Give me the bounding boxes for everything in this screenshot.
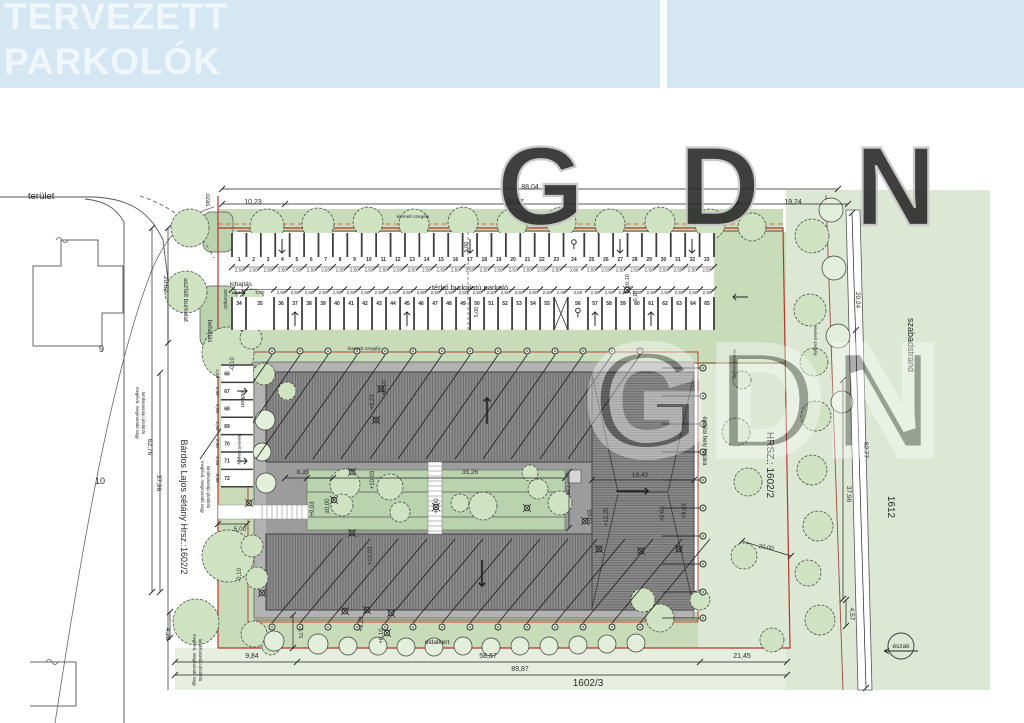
plan-label: kiemelt szegély	[397, 214, 430, 220]
plan-label: ±0,00	[325, 498, 331, 514]
stall-number: 12	[395, 257, 401, 263]
stall-dim: 2,50	[389, 290, 398, 295]
stall-number: 57	[592, 301, 598, 307]
stall-dim: 2,50	[590, 290, 599, 295]
stall-number: 47	[432, 301, 438, 307]
stall-dim: 2,50	[215, 456, 220, 465]
stall-dim: 2,50	[601, 268, 610, 273]
plan-label: +0,00	[434, 498, 440, 514]
plan-label: +9,03	[310, 501, 316, 517]
stall-number: 67	[224, 389, 230, 395]
stall-dim: 2,50	[689, 290, 698, 295]
watermark-text: GDN	[497, 124, 1024, 249]
stall-dim: 2,50	[307, 268, 316, 273]
plan-label: észak	[893, 643, 911, 650]
plan-label: +6,10	[382, 380, 388, 396]
stall-dim: 2,50	[361, 290, 370, 295]
stall-dim: 2,50	[673, 268, 682, 273]
stall-dim: 2,50	[336, 268, 345, 273]
stall-dim: 2,50	[375, 290, 384, 295]
plan-label: -0,10	[230, 357, 236, 371]
plan-label: kiemelt szegély	[237, 435, 242, 465]
stall-number: 52	[502, 301, 508, 307]
stall-number: 35	[257, 301, 263, 307]
stall-number: 45	[404, 301, 410, 307]
plan-label: lombkoronájú platánfa	[198, 639, 203, 682]
stall-number: 5	[295, 257, 298, 263]
plan-label: 89,87	[511, 666, 529, 673]
stall-number: 46	[418, 301, 424, 307]
stall-number: 31	[675, 257, 681, 263]
stall-number: 56	[575, 301, 581, 307]
stall-dim: 2,50	[264, 268, 273, 273]
stall-dim: 2,50	[494, 268, 503, 273]
site-plan-drawing: 12,5022,5032,5042,5052,5062,5072,5082,50…	[0, 0, 1024, 723]
stall-number: 39	[320, 301, 326, 307]
stall-dim: 2,50	[480, 268, 489, 273]
stall-number: 29	[646, 257, 652, 263]
plan-label: -0,10	[237, 568, 243, 582]
stall-number: 41	[348, 301, 354, 307]
plan-label: +9,23	[370, 394, 376, 410]
plan-label: 4,57	[848, 608, 855, 621]
stall-number: 66	[224, 372, 230, 378]
stall-number: 4	[281, 257, 284, 263]
stall-dim: 2,50	[379, 268, 388, 273]
stall-dim: 2,50	[215, 439, 220, 448]
stall-number: 50	[474, 301, 480, 307]
plan-label: 35,26	[462, 469, 479, 476]
stall-number: 27	[618, 257, 624, 263]
stall-number: 53	[516, 301, 522, 307]
plan-label: 9,84	[245, 653, 259, 660]
stall-dim: 2,50	[215, 369, 220, 378]
plan-label: 20,52	[162, 276, 169, 293]
plan-label: terület	[28, 191, 55, 202]
plan-label: +10,03	[368, 546, 374, 565]
plan-label: kihajtás	[230, 281, 253, 288]
stall-number: 38	[306, 301, 312, 307]
stall-number: 22	[539, 257, 545, 263]
stall-number: 70	[224, 441, 230, 447]
stall-number: 34	[236, 301, 242, 307]
plan-label: Bárdos Lajos sétány Hrsz.:1602/2	[179, 439, 189, 574]
plan-label: meglévő, megmaradó nagy	[192, 634, 197, 687]
stall-number: 15	[438, 257, 444, 263]
stall-dim: 2,50	[422, 268, 431, 273]
stall-number: 51	[488, 301, 494, 307]
stall-number: 37	[292, 301, 298, 307]
stall-dim: 2,50	[552, 268, 561, 273]
plan-label: 0,10	[633, 291, 639, 302]
stall-number: 54	[530, 301, 536, 307]
stall-dim: 2,50	[451, 268, 460, 273]
stall-dim: 2,50	[215, 474, 220, 483]
plan-label: +10,03	[370, 470, 376, 489]
stall-dim: 2,50	[347, 290, 356, 295]
stall-dim: 2,50	[702, 268, 711, 273]
stall-number: 25	[589, 257, 595, 263]
plan-label: aszfalt burkolat	[182, 278, 189, 322]
plan-label: ozás	[204, 194, 210, 207]
stall-number: 55	[544, 301, 550, 307]
stall-dim: 2,50	[215, 421, 220, 430]
stall-number: 68	[224, 407, 230, 413]
stall-dim: 2,50	[437, 268, 446, 273]
stall-number: 14	[424, 257, 430, 263]
stall-number: 44	[390, 301, 396, 307]
plan-label: oldalkert	[425, 639, 450, 646]
plan-label: 10,23	[244, 199, 262, 206]
stall-number: 58	[606, 301, 612, 307]
plan-label: 37,96	[845, 486, 852, 503]
stall-dim: 2,50	[364, 268, 373, 273]
stall-dim: 3,60	[573, 290, 582, 295]
stall-number: 59	[620, 301, 626, 307]
stall-dim: 2,50	[215, 404, 220, 413]
plan-label: +9,60	[660, 506, 666, 522]
stall-number: 6	[310, 257, 313, 263]
stall-dim: 2,50	[393, 268, 402, 273]
stall-number: 20	[510, 257, 516, 263]
plan-label: 58,57	[479, 653, 497, 660]
stall-number: 33	[704, 257, 710, 263]
plan-label: térkő burkolatú parkoló	[432, 283, 508, 292]
stall-number: 72	[224, 476, 230, 482]
stall-number: 1	[238, 257, 241, 263]
plan-label: 5,00	[234, 526, 247, 533]
stall-number: 30	[661, 257, 667, 263]
stall-dim: 2,50	[604, 290, 613, 295]
stall-dim: 2,50	[292, 268, 301, 273]
stall-number: 42	[362, 301, 368, 307]
plan-label: +9,23	[359, 616, 365, 632]
stall-number: 65	[704, 301, 710, 307]
plan-label: 4,28	[164, 628, 171, 641]
stall-dim: 2,50	[465, 268, 474, 273]
stall-number: 64	[690, 301, 696, 307]
plan-label: +12,25	[604, 507, 610, 526]
stall-dim: 2,50	[291, 290, 300, 295]
stall-dim: 2,50	[350, 268, 359, 273]
stall-dim: 2,50	[645, 268, 654, 273]
plan-label: behajtás	[206, 320, 212, 343]
watermark-text: GDN	[588, 316, 945, 484]
stall-number: 26	[603, 257, 609, 263]
stall-number: 36	[278, 301, 284, 307]
plan-label: 20,24	[854, 292, 861, 309]
plan-label: meglévő, megmaradó nagy	[135, 387, 140, 440]
stall-number: 21	[525, 257, 531, 263]
stall-dim: 2,50	[277, 290, 286, 295]
stall-number: 28	[632, 257, 638, 263]
stall-number: 63	[676, 301, 682, 307]
stall-dim: 2,50	[319, 290, 328, 295]
stall-dim: 2,50	[703, 290, 712, 295]
stall-number: 18	[481, 257, 487, 263]
stall-number: 13	[409, 257, 415, 263]
stall-dim: 2,50	[515, 290, 524, 295]
stall-dim: 2,45	[556, 290, 565, 295]
stall-number: 11	[381, 257, 387, 263]
plan-label: 7,35	[564, 485, 570, 495]
neighbor-buildings	[30, 238, 123, 707]
stall-dim: 2,50	[249, 268, 258, 273]
stall-dim: 2,50	[403, 290, 412, 295]
plan-label: előkert	[239, 391, 245, 408]
stall-number: 32	[690, 257, 696, 263]
plan-label: 10	[95, 476, 105, 486]
plan-label: 5,00	[474, 307, 480, 318]
plan-label: 9	[99, 344, 104, 354]
stall-number: 61	[648, 301, 654, 307]
screenshot-page: TERVEZETT PARKOLÓK 12,5022,5032,5042,505…	[0, 0, 1024, 723]
stall-number: 40	[334, 301, 340, 307]
stall-number: 62	[662, 301, 668, 307]
stall-dim: 2,50	[616, 268, 625, 273]
stall-dim: 2,50	[333, 290, 342, 295]
stall-number: 69	[224, 424, 230, 430]
plan-label: 8,35	[297, 469, 310, 476]
stall-number: 71	[224, 459, 230, 465]
plan-label: +6,10	[379, 628, 385, 644]
stall-dim: 2,50	[630, 268, 639, 273]
stall-dim: 2,50	[215, 387, 220, 396]
plan-label: 1612	[885, 496, 896, 519]
stall-number: 43	[376, 301, 382, 307]
plan-label: kiemelt szegély	[348, 346, 381, 352]
stall-number: 24	[571, 257, 577, 263]
stall-number: 23	[554, 257, 560, 263]
plan-label: meglévő, megmaradó nagy	[200, 461, 205, 514]
stall-number: 48	[446, 301, 452, 307]
stall-dim: 2,50	[647, 290, 656, 295]
plan-label: 3,75	[297, 628, 303, 639]
stall-number: 3	[267, 257, 270, 263]
stall-dim: 2,50	[529, 290, 538, 295]
plan-label: lombkoronájú platánfa	[141, 392, 146, 435]
plan-label: 21,45	[733, 653, 751, 660]
stall-dim: 2,50	[543, 290, 552, 295]
plan-label: 5,00	[464, 242, 470, 253]
stall-dim: 2,50	[523, 268, 532, 273]
stall-dim: 2,50	[305, 290, 314, 295]
stall-dim: 2,50	[509, 268, 518, 273]
stall-number: 19	[496, 257, 502, 263]
stall-number: 16	[453, 257, 459, 263]
stall-number: 2	[252, 257, 255, 263]
stall-dim: 2,50	[537, 268, 546, 273]
stall-dim: 2,50	[321, 268, 330, 273]
stall-dim: 3,60	[569, 268, 578, 273]
stall-dim: 2,50	[408, 268, 417, 273]
stall-number: 10	[366, 257, 372, 263]
plan-label: ±0,10	[625, 274, 631, 288]
stall-number: 49	[460, 301, 466, 307]
stall-dim: 2,50	[417, 290, 426, 295]
plan-label: 1602/3	[573, 678, 604, 689]
plan-label: lombkoronájú platánfa	[206, 466, 211, 509]
stall-number: 9	[353, 257, 356, 263]
stall-dim: 2,50	[688, 268, 697, 273]
stall-dim: 2,50	[587, 268, 596, 273]
stall-dim: 2,50	[278, 268, 287, 273]
stall-number: 8	[339, 257, 342, 263]
stall-dim: 5,00	[256, 290, 265, 295]
plan-label: 62,76	[146, 439, 153, 456]
stall-dim: 2,50	[675, 290, 684, 295]
stall-dim: 2,50	[659, 268, 668, 273]
plan-label: sorompó	[222, 289, 228, 309]
stall-number: 7	[324, 257, 327, 263]
plan-label: +9,03	[682, 503, 688, 519]
plan-label: +9,65	[588, 509, 594, 525]
stall-dim: 2,50	[661, 290, 670, 295]
stall-dim: 2,50	[235, 268, 244, 273]
plan-label: 37,96	[155, 475, 162, 492]
